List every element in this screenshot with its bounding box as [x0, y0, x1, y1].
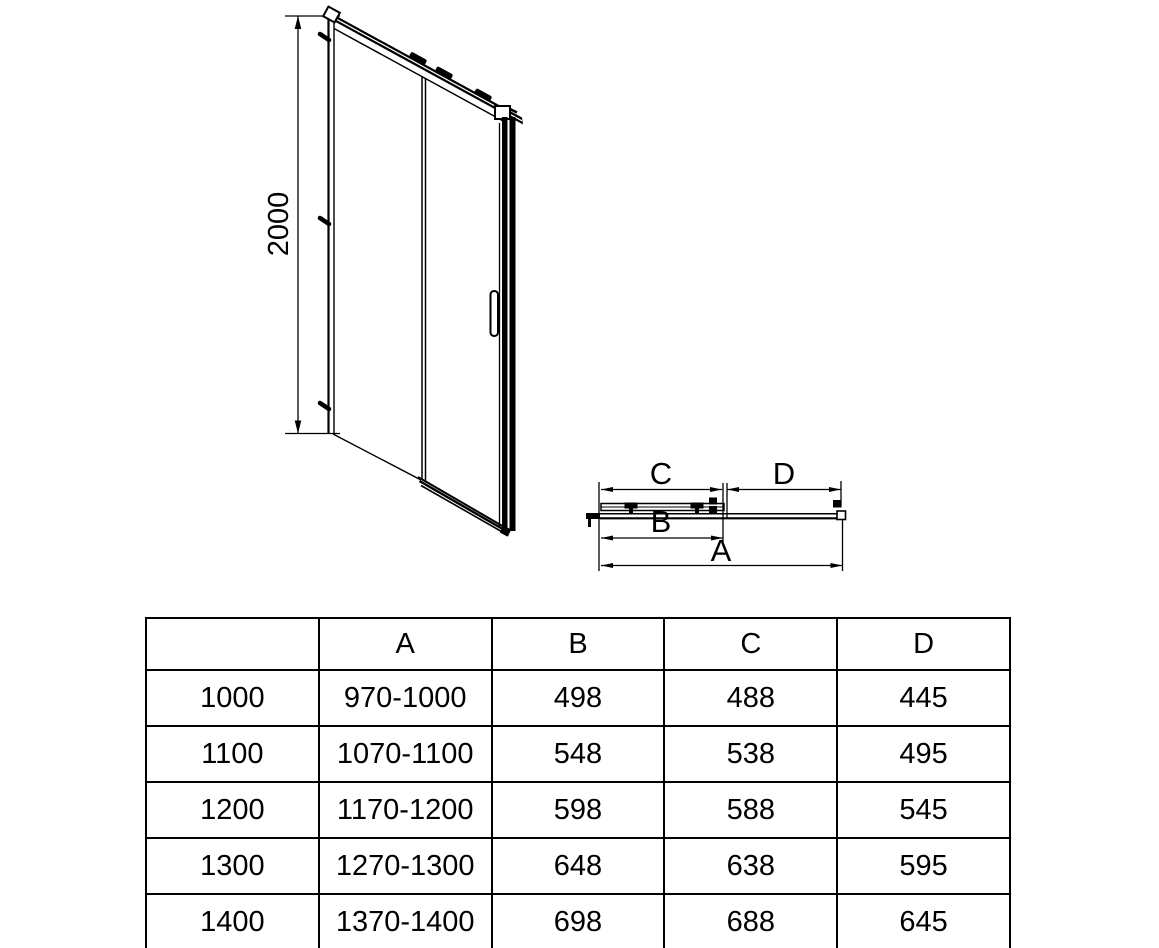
table-row: 1200 1170-1200 598 588 545	[146, 782, 1010, 838]
dim-b-label: B	[651, 504, 672, 539]
plan-wall-bracket	[833, 500, 842, 508]
table-cell-size: 1400	[146, 894, 319, 948]
table-cell-a: 1070-1100	[319, 726, 492, 782]
table-cell-size: 1300	[146, 838, 319, 894]
dimensions-table: A B C D 1000 970-1000 498 488 445 1100 1…	[145, 617, 1011, 948]
plan-view: C D B	[586, 456, 846, 571]
dim-d-label: D	[773, 456, 795, 491]
table-header-row: A B C D	[146, 618, 1010, 670]
right-post	[500, 117, 516, 531]
table-cell-d: 645	[837, 894, 1010, 948]
table-cell-b: 548	[492, 726, 665, 782]
table-cell-b: 498	[492, 670, 665, 726]
dimensions-table-container: A B C D 1000 970-1000 498 488 445 1100 1…	[145, 617, 1011, 948]
dimension-c: C	[601, 456, 722, 492]
table-cell-a: 1170-1200	[319, 782, 492, 838]
plan-roller-icon	[691, 503, 704, 509]
table-cell-b: 598	[492, 782, 665, 838]
table-cell-d: 445	[837, 670, 1010, 726]
glass-divider	[422, 76, 426, 481]
table-cell-b: 648	[492, 838, 665, 894]
table-cell-a: 970-1000	[319, 670, 492, 726]
table-cell-size: 1000	[146, 670, 319, 726]
table-cell-c: 538	[664, 726, 837, 782]
table-cell-b: 698	[492, 894, 665, 948]
technical-drawing-page: 2000	[0, 0, 1159, 948]
glass-top-edge	[334, 29, 505, 123]
table-cell-d: 545	[837, 782, 1010, 838]
dim-arrow-down	[295, 421, 302, 434]
table-cell-a: 1370-1400	[319, 894, 492, 948]
plan-stopper-icon	[709, 498, 717, 505]
shower-door-diagram: 2000	[0, 0, 1159, 605]
table-cell-c: 688	[664, 894, 837, 948]
dim-a-label: A	[711, 533, 732, 568]
table-row: 1300 1270-1300 648 638 595	[146, 838, 1010, 894]
table-row: 1100 1070-1100 548 538 495	[146, 726, 1010, 782]
plan-wall-profile	[586, 513, 600, 519]
glass-bottom-edge	[333, 434, 421, 480]
table-cell-c: 638	[664, 838, 837, 894]
table-cell-d: 495	[837, 726, 1010, 782]
plan-end-cap-right	[837, 511, 846, 520]
table-cell-size: 1200	[146, 782, 319, 838]
table-cell-a: 1270-1300	[319, 838, 492, 894]
wall-profile-left	[320, 14, 334, 434]
table-header-size	[146, 618, 319, 670]
height-dimension-label: 2000	[263, 192, 295, 257]
top-track	[323, 7, 523, 125]
elevation-view: 2000	[263, 7, 523, 537]
table-cell-d: 595	[837, 838, 1010, 894]
table-header-a: A	[319, 618, 492, 670]
table-row: 1000 970-1000 498 488 445	[146, 670, 1010, 726]
table-cell-c: 488	[664, 670, 837, 726]
table-cell-size: 1100	[146, 726, 319, 782]
table-row: 1400 1370-1400 698 688 645	[146, 894, 1010, 948]
table-header-d: D	[837, 618, 1010, 670]
table-header-b: B	[492, 618, 665, 670]
table-cell-c: 588	[664, 782, 837, 838]
dimension-d: D	[727, 456, 841, 492]
table-header-c: C	[664, 618, 837, 670]
plan-roller-icon	[625, 503, 638, 509]
door-handle	[491, 291, 499, 336]
dim-arrow-up	[295, 16, 302, 29]
dim-c-label: C	[650, 456, 672, 491]
